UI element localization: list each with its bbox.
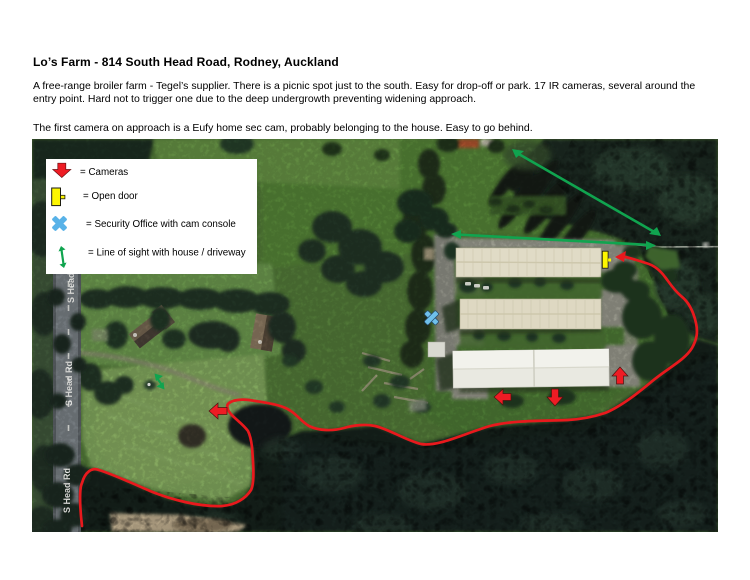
- svg-text:= Line of sight with house / d: = Line of sight with house / driveway: [88, 248, 246, 259]
- svg-text:= Open door: = Open door: [83, 191, 138, 202]
- svg-text:= Security Office with cam con: = Security Office with cam console: [86, 219, 236, 230]
- svg-text:= Cameras: = Cameras: [80, 167, 128, 178]
